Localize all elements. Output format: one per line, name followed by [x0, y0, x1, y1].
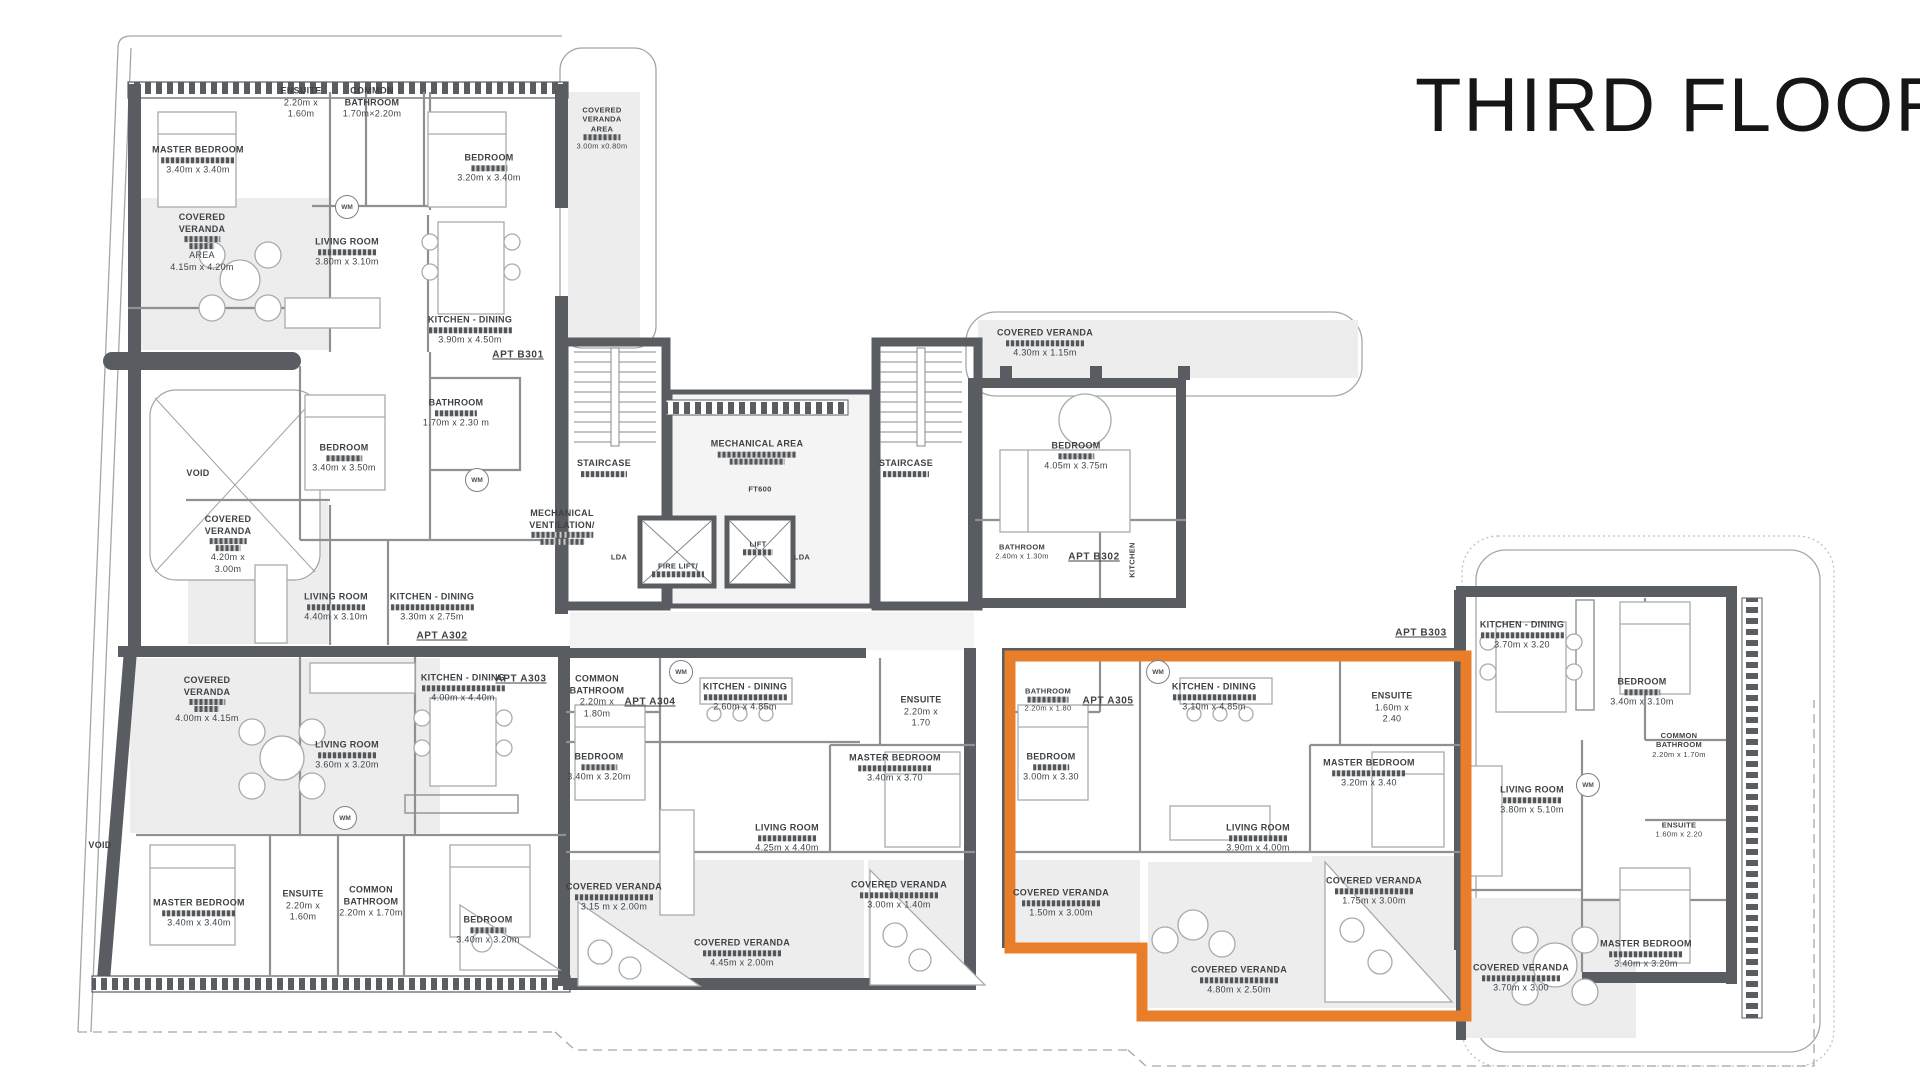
redacted-text-bar	[435, 410, 477, 416]
room-label-b303-living-room: LIVING ROOM3.80m x 5.10m	[1500, 784, 1564, 815]
room-label-a303-ensuite: ENSUITE2.20m x1.60m	[282, 888, 323, 923]
room-label-b303-ensuite: ENSUITE1.60m x 2.20	[1656, 821, 1703, 840]
redacted-text-bar	[390, 604, 473, 610]
redacted-text-bar	[860, 892, 938, 898]
redacted-text-bar	[1480, 632, 1563, 638]
room-label-apt-b301: APT B301	[492, 349, 544, 362]
redacted-text-bar	[703, 694, 786, 700]
room-label-a302-cv: COVEREDVERANDA4.20m x3.00m	[205, 514, 252, 576]
room-label-lift: LIFT	[743, 539, 773, 556]
redacted-text-bar	[1200, 977, 1278, 983]
redacted-text-bar	[189, 699, 225, 705]
room-label-b303-master-bedroom: MASTER BEDROOM3.40m x 3.20m	[1600, 938, 1692, 969]
redacted-text-bar	[703, 950, 781, 956]
room-label-apt-b302: APT B302	[1068, 551, 1120, 564]
redacted-text-bar	[1027, 697, 1069, 703]
redacted-text-bar	[575, 894, 653, 900]
redacted-text-bar	[540, 539, 584, 545]
redacted-text-bar	[743, 550, 773, 556]
room-label-apt-a302: APT A302	[416, 630, 467, 643]
room-label-a302-bedroom: BEDROOM3.40m x 3.50m	[312, 442, 375, 473]
washing-machine-badge: WM	[335, 195, 359, 219]
room-label-apt-a303: APT A303	[495, 673, 546, 686]
room-label-b303-common-bathroom: COMMONBATHROOM2.20m x 1.70m	[1652, 731, 1706, 759]
room-label-b301-kitchen-dining: KITCHEN - DINING3.90m x 4.50m	[428, 314, 512, 345]
room-label-a305-living-room: LIVING ROOM3.90m x 4.00m	[1226, 822, 1290, 853]
room-label-b303-cv: COVERED VERANDA3.70m x 3.00	[1473, 962, 1569, 993]
room-label-apt-b303: APT B303	[1395, 627, 1447, 640]
redacted-text-bar	[1022, 900, 1100, 906]
room-label-ft600: FT600	[748, 484, 771, 493]
room-label-b301-cv-area-east: COVEREDVERANDAAREA3.00m x0.80m	[576, 105, 627, 151]
room-label-apt-a304: APT A304	[624, 696, 675, 709]
redacted-text-bar	[215, 546, 240, 552]
room-label-a304-common-bathroom: COMMONBATHROOM2.20m x1.80m	[570, 674, 625, 721]
room-label-a305-cv-2: COVERED VERANDA1.75m x 3.00m	[1326, 875, 1422, 906]
redacted-text-bar	[1482, 975, 1560, 981]
redacted-text-bar	[718, 451, 796, 457]
washing-machine-badge: WM	[1576, 773, 1600, 797]
redacted-text-bar	[581, 764, 617, 770]
room-label-b302-bathroom: BATHROOM2.40m x 1.30m	[995, 543, 1049, 562]
room-label-b301-bedroom: BEDROOM3.20m x 3.40m	[457, 152, 520, 183]
room-label-a304-cv-1: COVERED VERANDA3.15 m x 2.00m	[566, 881, 662, 912]
redacted-text-bar	[1503, 797, 1560, 803]
redacted-text-bar	[1006, 340, 1084, 346]
redacted-text-bar	[326, 455, 362, 461]
room-label-void-2: VOID	[88, 840, 111, 852]
redacted-text-bar	[581, 471, 628, 477]
washing-machine-badge: WM	[465, 468, 489, 492]
redacted-text-bar	[318, 752, 375, 758]
redacted-text-bar	[1058, 453, 1094, 459]
room-label-b302-cv: COVERED VERANDA4.30m x 1.15m	[997, 327, 1093, 358]
room-label-mechanical-ventilation: MECHANICALVENTILATION/	[529, 508, 594, 546]
room-label-b302-bedroom: BEDROOM4.05m x 3.75m	[1044, 440, 1107, 471]
redacted-text-bar	[730, 458, 785, 464]
room-label-a302-living-room: LIVING ROOM4.40m x 3.10m	[304, 591, 368, 622]
redacted-text-bar	[307, 604, 364, 610]
room-label-a305-bathroom: BATHROOM2.20m x 1.80	[1025, 687, 1072, 714]
redacted-text-bar	[471, 165, 507, 171]
room-label-b301-living-room: LIVING ROOM3.80m x 3.10m	[315, 236, 379, 267]
redacted-text-bar	[859, 765, 932, 771]
room-label-a303-common-bathroom: COMMONBATHROOM2.20m x 1.70m	[339, 884, 402, 919]
room-label-mechanical-area: MECHANICAL AREA	[711, 439, 804, 466]
room-label-apt-a305: APT A305	[1082, 695, 1133, 708]
room-label-b303-bedroom: BEDROOM3.40m x 3.10m	[1610, 676, 1673, 707]
room-label-fire-lift: FIRE LIFT/	[652, 561, 704, 578]
room-label-a305-master-bedroom: MASTER BEDROOM3.20m x 3.40	[1323, 757, 1415, 788]
room-label-a305-kitchen-dining: KITCHEN - DINING3.10m x 4.85m	[1172, 681, 1256, 712]
room-label-a304-cv-2: COVERED VERANDA4.45m x 2.00m	[694, 937, 790, 968]
room-label-void-1: VOID	[186, 468, 209, 480]
room-label-b301-ensuite: ENSUITE2.20m x1.60m	[280, 85, 321, 120]
redacted-text-bar	[1172, 694, 1255, 700]
redacted-text-bar	[758, 835, 815, 841]
washing-machine-badge: WM	[333, 806, 357, 830]
redacted-text-bar	[162, 157, 235, 163]
redacted-text-bar	[1229, 835, 1286, 841]
redacted-text-bar	[1335, 888, 1413, 894]
room-label-a303-master-bedroom: MASTER BEDROOM3.40m x 3.40m	[153, 897, 245, 928]
room-label-a303-living-room: LIVING ROOM3.60m x 3.20m	[315, 739, 379, 770]
redacted-text-bar	[1033, 764, 1069, 770]
redacted-text-bar	[1610, 951, 1683, 957]
redacted-text-bar	[318, 249, 375, 255]
room-label-a304-master-bedroom: MASTER BEDROOM3.40m x 3.70	[849, 752, 941, 783]
room-label-lda-2: LDA	[794, 552, 810, 561]
redacted-text-bar	[421, 685, 504, 691]
room-label-staircase-1: STAIRCASE	[577, 458, 631, 478]
redacted-text-bar	[163, 910, 236, 916]
redacted-text-bar	[652, 572, 704, 578]
room-label-b301-master-bedroom: MASTER BEDROOM3.40m x 3.40m	[152, 144, 244, 175]
room-label-b302-kitchen: KITCHEN	[1127, 542, 1136, 577]
room-label-a303-bedroom: BEDROOM3.40m x 3.20m	[456, 914, 519, 945]
room-label-a305-cv-3: COVERED VERANDA4.80m x 2.50m	[1191, 964, 1287, 995]
room-label-a305-cv-1: COVERED VERANDA1.50m x 3.00m	[1013, 887, 1109, 918]
floor-plan-page: THIRD FLOOR MASTER BEDROOM3.40m x 3.40mE…	[0, 0, 1920, 1080]
redacted-text-bar	[1624, 689, 1660, 695]
redacted-text-bar	[194, 706, 219, 712]
room-label-a304-ensuite: ENSUITE2.20m x1.70	[900, 694, 941, 729]
redacted-text-bar	[584, 134, 620, 140]
redacted-text-bar	[184, 237, 220, 243]
washing-machine-badge: WM	[1146, 660, 1170, 684]
room-label-a302-kitchen-dining: KITCHEN - DINING3.30m x 2.75m	[390, 591, 474, 622]
redacted-text-bar	[531, 532, 593, 538]
room-label-b303-kitchen-dining: KITCHEN - DINING3.70m x 3.20	[1480, 619, 1564, 650]
redacted-text-bar	[470, 927, 506, 933]
room-label-a305-bedroom: BEDROOM3.00m x 3.30	[1023, 751, 1079, 782]
room-label-b301-common-bathroom: COMMONBATHROOM1.70m×2.20m	[343, 85, 402, 120]
redacted-text-bar	[210, 539, 246, 545]
room-label-a303-cv: COVEREDVERANDA4.00m x 4.15m	[175, 675, 238, 725]
room-label-lda-1: LDA	[611, 552, 627, 561]
washing-machine-badge: WM	[669, 660, 693, 684]
redacted-text-bar	[189, 244, 214, 250]
room-labels-layer: MASTER BEDROOM3.40m x 3.40mENSUITE2.20m …	[0, 0, 1920, 1080]
room-label-a305-ensuite: ENSUITE1.60m x2.40	[1371, 690, 1412, 725]
redacted-text-bar	[883, 471, 930, 477]
room-label-a304-kitchen-dining: KITCHEN - DINING2.60m x 4.85m	[703, 681, 787, 712]
redacted-text-bar	[428, 327, 511, 333]
redacted-text-bar	[1333, 770, 1406, 776]
room-label-a304-bedroom: BEDROOM3.40m x 3.20m	[567, 751, 630, 782]
room-label-staircase-2: STAIRCASE	[879, 458, 933, 478]
room-label-b301-bathroom: BATHROOM1.70m x 2.30 m	[423, 397, 489, 428]
room-label-a304-cv-3: COVERED VERANDA3.00m x 1.40m	[851, 879, 947, 910]
room-label-a303-kitchen-dining: KITCHEN - DINING4.00m x 4.40m	[421, 672, 505, 703]
room-label-b301-cv-area: COVEREDVERANDAAREA4.15m x 4.20m	[170, 212, 233, 274]
room-label-a304-living-room: LIVING ROOM4.25m x 4.40m	[755, 822, 819, 853]
